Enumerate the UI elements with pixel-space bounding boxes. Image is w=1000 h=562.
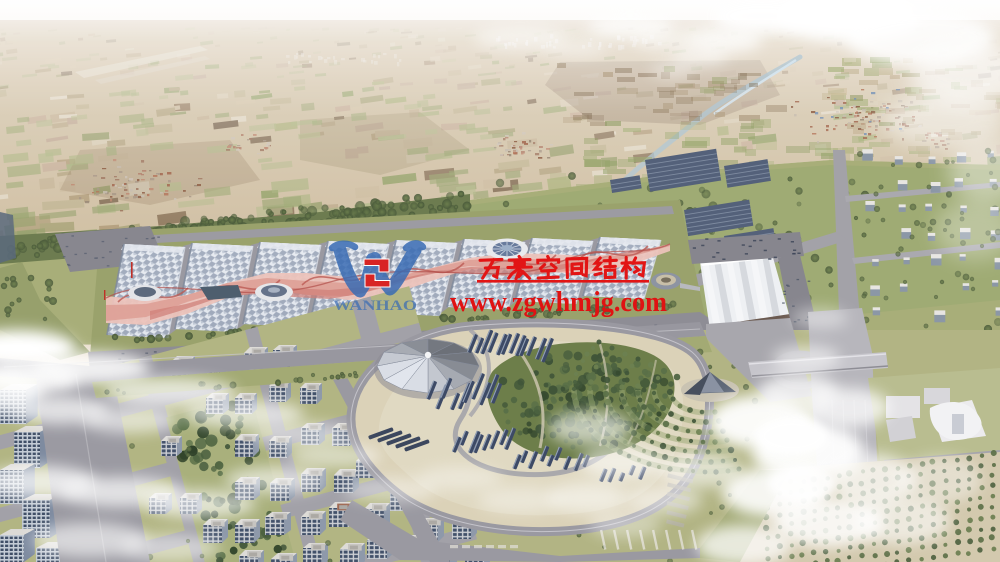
svg-text:WANHAO: WANHAO: [333, 298, 417, 314]
svg-text:www.zgwhmjg.com: www.zgwhmjg.com: [450, 286, 667, 318]
